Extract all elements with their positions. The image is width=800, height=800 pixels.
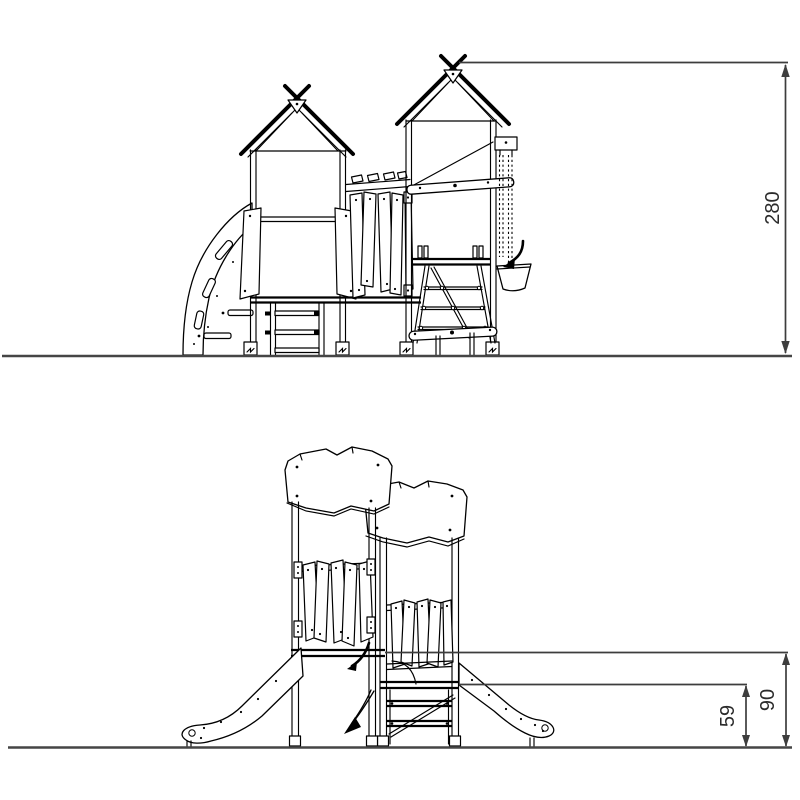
ground-anchor bbox=[400, 342, 499, 355]
right-tower-plank-wall bbox=[380, 599, 459, 688]
left-tower-roof bbox=[241, 86, 353, 157]
climbing-plank-wall bbox=[346, 172, 413, 299]
dimension-label-90: 90 bbox=[757, 689, 779, 711]
bucket-arrow bbox=[509, 241, 523, 263]
dimension-label-59: 59 bbox=[717, 705, 739, 727]
chain-hoist bbox=[495, 137, 531, 291]
left-tower-ladder bbox=[265, 303, 324, 355]
left-slide-front bbox=[182, 648, 303, 748]
right-tower-roof bbox=[397, 56, 509, 127]
rope-climber bbox=[409, 266, 497, 355]
side-elevation-view: 280 bbox=[2, 56, 792, 356]
left-tower-canopy bbox=[285, 447, 392, 516]
dimension-label-280: 280 bbox=[762, 191, 784, 224]
stairs bbox=[387, 690, 455, 744]
left-tower-front bbox=[290, 502, 386, 746]
right-tower bbox=[397, 56, 514, 355]
right-slide-front bbox=[459, 663, 554, 748]
front-elevation-view: 90 59 bbox=[8, 447, 792, 748]
playground-technical-drawing: 280 bbox=[0, 0, 800, 800]
